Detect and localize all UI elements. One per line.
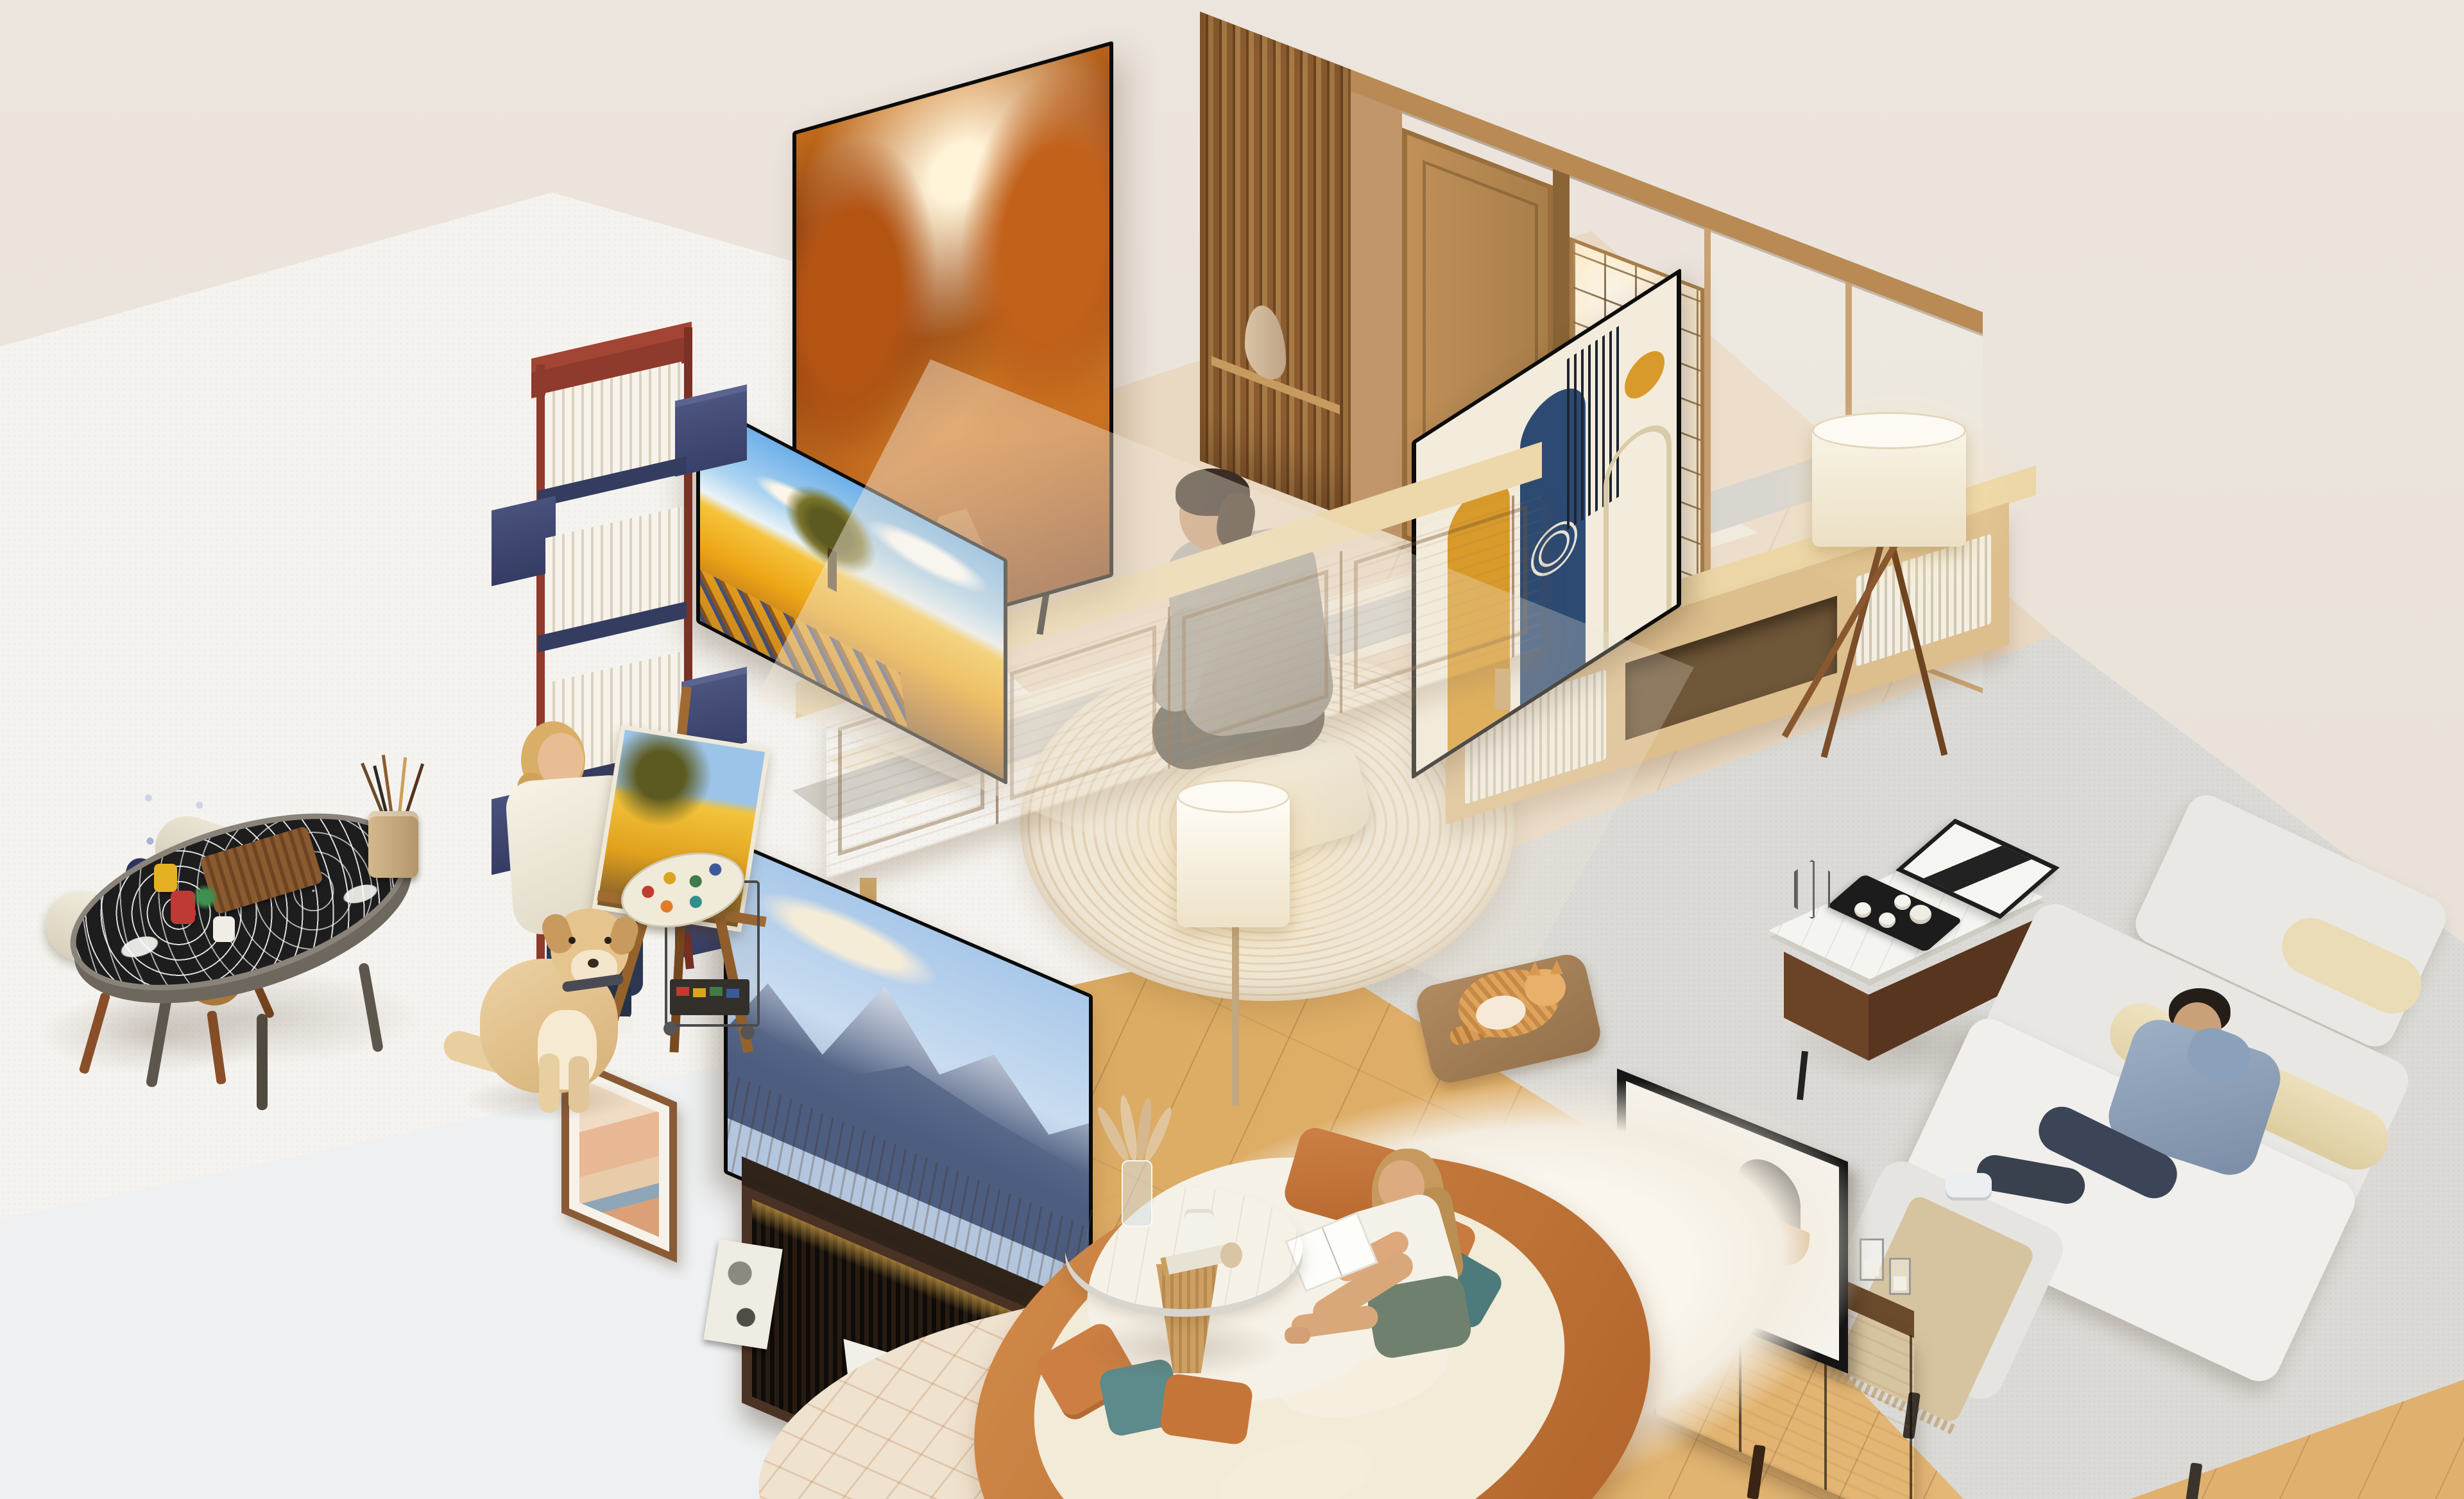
paint-tube-4 bbox=[726, 989, 739, 998]
table-candle bbox=[1185, 1209, 1214, 1250]
cart-wheel-right bbox=[740, 1025, 755, 1040]
dog-front-leg-1 bbox=[539, 1054, 560, 1113]
brush-pot bbox=[346, 761, 443, 889]
paint-jar-red bbox=[171, 891, 195, 924]
table-leg-2 bbox=[257, 1014, 268, 1110]
dog-eye-right bbox=[604, 937, 612, 944]
cart-wheel-left bbox=[663, 1022, 678, 1036]
paint-tube-2 bbox=[693, 988, 706, 997]
glass-candle-2 bbox=[1889, 1258, 1911, 1295]
wire-lantern bbox=[1794, 860, 1830, 919]
sofa-man bbox=[1976, 969, 2374, 1303]
palette-cart bbox=[653, 865, 775, 1045]
center-drum-lamp bbox=[1168, 773, 1309, 1133]
tripod-lamp bbox=[1807, 408, 2076, 793]
lamp-pole bbox=[1232, 920, 1239, 1106]
lamp-shade-top bbox=[1177, 780, 1290, 813]
slat-wall bbox=[1200, 12, 1351, 518]
scene-canvas bbox=[0, 0, 2464, 1499]
autumn-canopy-right bbox=[959, 46, 1109, 436]
wall-flat-panel bbox=[1351, 91, 1402, 538]
vase-glass bbox=[1122, 1160, 1152, 1227]
pampas-vase bbox=[1096, 1104, 1179, 1245]
paint-tube-1 bbox=[676, 987, 689, 996]
table-egg-decor bbox=[1220, 1242, 1242, 1268]
dog-front-leg-2b bbox=[569, 1056, 589, 1113]
paint-table bbox=[64, 802, 449, 1084]
dog-nose bbox=[588, 959, 599, 968]
marble-side-table bbox=[1059, 1181, 1315, 1392]
paint-tube-3 bbox=[710, 987, 723, 996]
paint-jar-yellow bbox=[154, 864, 177, 892]
cart-lower-tray bbox=[670, 979, 749, 1015]
tripod-shade-top bbox=[1812, 412, 1966, 449]
pot-body bbox=[368, 811, 418, 878]
reading-woman bbox=[1296, 1149, 1527, 1392]
mini-plant bbox=[193, 884, 218, 910]
mustard-dot bbox=[1625, 343, 1664, 408]
sofa-leg-2 bbox=[2185, 1462, 2202, 1499]
dog bbox=[443, 897, 654, 1122]
candle-wax-2 bbox=[1894, 1276, 1906, 1290]
paint-cup-white bbox=[213, 916, 235, 942]
dog-eye-left bbox=[569, 937, 576, 944]
book-spine bbox=[1322, 1228, 1342, 1276]
